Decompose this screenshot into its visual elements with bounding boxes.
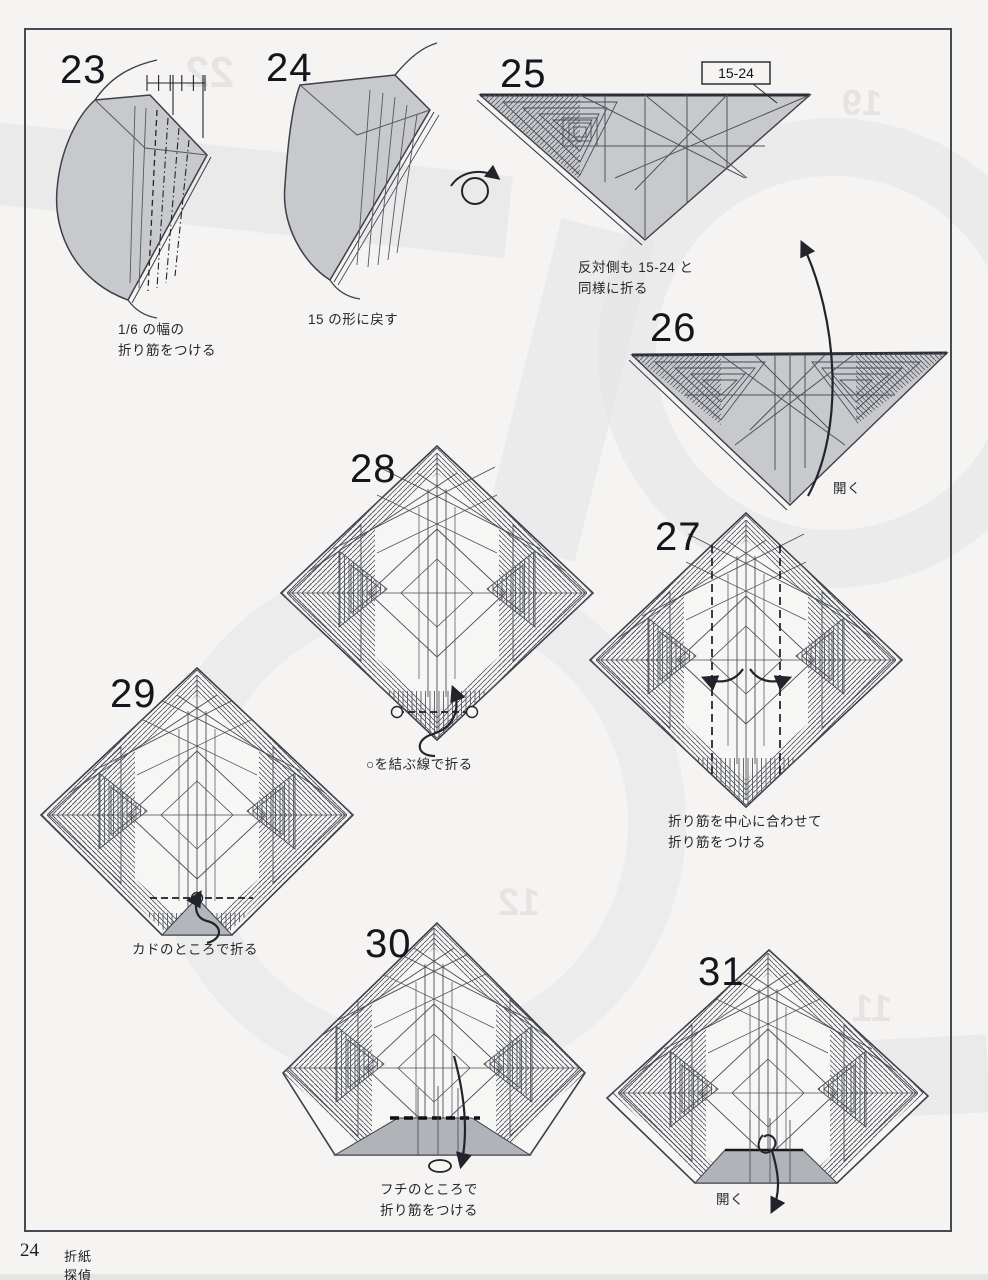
fold-mark-circle-left [392, 707, 403, 718]
footer-page-number: 24 [20, 1240, 39, 1262]
step-26-number: 26 [650, 306, 697, 351]
footer-publication: 折紙探偵団 117 号 2009 年 [64, 1246, 97, 1280]
step-27-caption: 折り筋を中心に合わせて 折り筋をつける [668, 812, 822, 854]
step-31-number: 31 [698, 950, 745, 995]
arrow-loop-icon [429, 1160, 451, 1172]
step-31-caption: 開く [716, 1190, 744, 1211]
step-31-pentagon-diagram [600, 935, 945, 1210]
step-24-caption: 15 の形に戻す [308, 310, 398, 331]
step-30-number: 30 [365, 922, 412, 967]
step-25-number: 25 [500, 52, 547, 97]
step-29-caption: カドのところで折る [132, 940, 258, 961]
scan-edge [0, 1274, 988, 1280]
step-29-number: 29 [110, 672, 157, 717]
fold-mark-circle-right [467, 707, 478, 718]
step-28-number: 28 [350, 447, 397, 492]
step-23-caption: 1/6 の幅の 折り筋をつける [118, 320, 216, 362]
step-25-caption: 反対側も 15-24 と 同様に折る [578, 258, 694, 300]
scanned-origami-page: 22 19 12 11 [0, 0, 988, 1280]
step-28-caption: ○を結ぶ線で折る [366, 755, 473, 776]
step-30-pentagon-diagram [268, 908, 603, 1183]
step-27-diamond-diagram [575, 505, 920, 850]
step-30-caption: フチのところで 折り筋をつける [380, 1180, 478, 1222]
step-26-caption: 開く [833, 479, 861, 500]
step-24-number: 24 [266, 46, 313, 91]
svg-text:15-24: 15-24 [718, 65, 754, 81]
step-26-open-arrow-icon [770, 228, 860, 513]
step-27-number: 27 [655, 515, 702, 560]
step-23-number: 23 [60, 48, 107, 93]
